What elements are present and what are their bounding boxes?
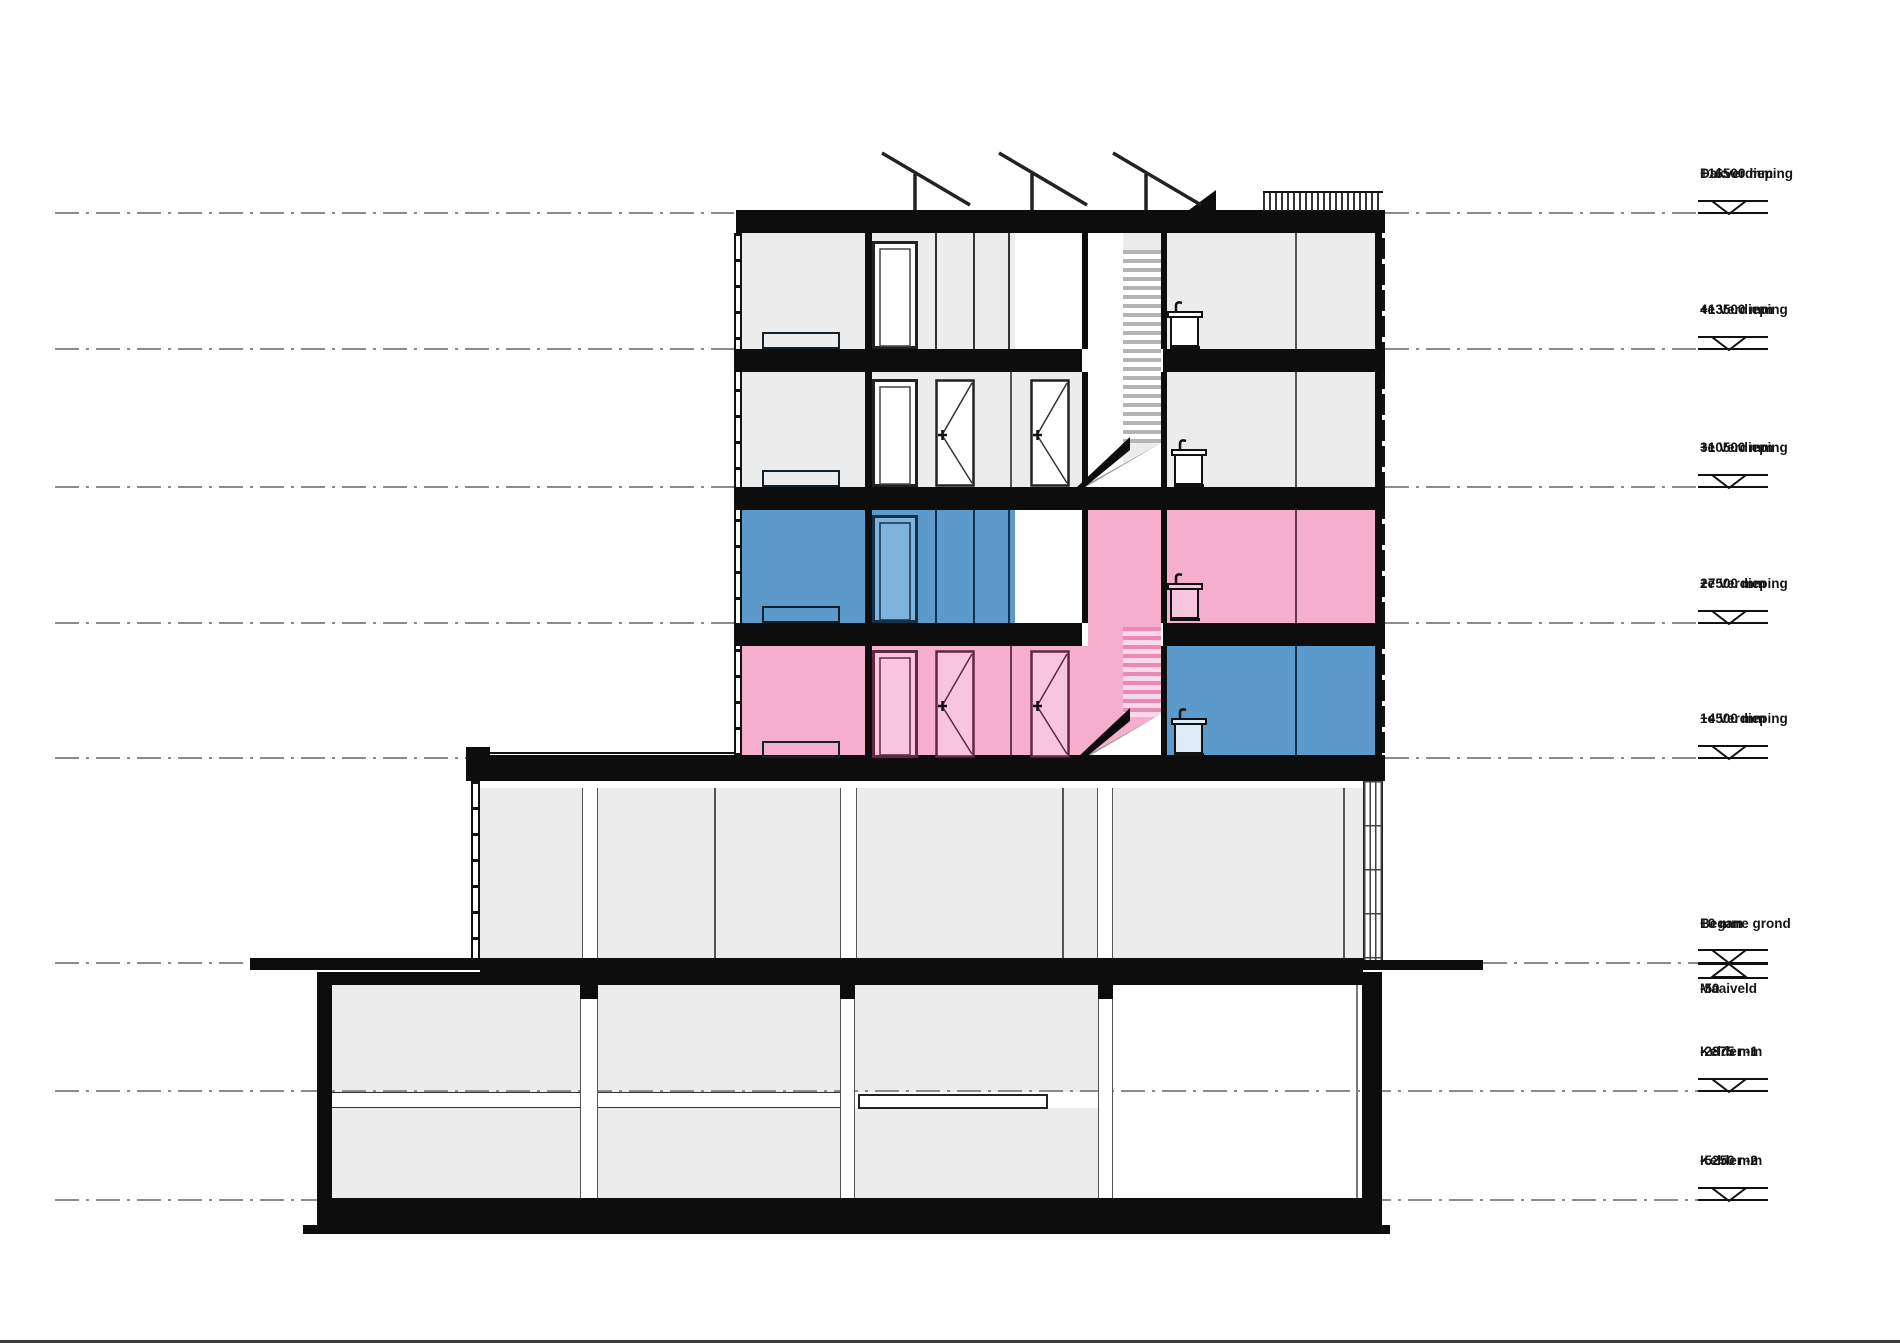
floor3-corridor-wall [1082, 372, 1088, 487]
level-subtext: Maaiveld [1700, 981, 1757, 997]
stair-run-1-2 [1123, 627, 1161, 717]
floor4-room-divider [1295, 233, 1297, 349]
floor2-stair-hall-pink [1088, 510, 1161, 646]
floor4-wall [865, 233, 872, 349]
floor2-wall [865, 510, 872, 623]
basement1-room [332, 985, 1098, 1092]
groundfloor-glass-partition [1343, 788, 1345, 958]
basement-wall [580, 985, 598, 1198]
floor1-hinged-door [1030, 650, 1070, 758]
level-elevation: -2875 mm [1700, 1044, 1762, 1060]
floor3-door [872, 379, 918, 487]
floor4-partition [935, 233, 1010, 349]
podium-roof-slab [470, 755, 1385, 781]
floor3-hinged-door [935, 379, 975, 487]
basement-wall [840, 985, 855, 1198]
foundation-footing [303, 1225, 1390, 1234]
level-line-v3 [1385, 486, 1698, 488]
basement-wall-head [1098, 985, 1113, 999]
groundfloor-room [480, 788, 1363, 958]
floor2-slab-right [1163, 623, 1385, 646]
level-elevation: +7500 mm [1700, 576, 1766, 592]
bench [762, 606, 840, 623]
floor2-room-divider [1295, 510, 1297, 623]
bench [762, 470, 840, 487]
kitchen-sink-icon [1170, 434, 1208, 488]
solar-panel-icon [995, 148, 1095, 212]
level-line-v2 [1385, 622, 1698, 624]
floor1-wall [865, 646, 872, 758]
floor4-corridor-wall [1082, 233, 1088, 349]
floor1-room-divider [1295, 646, 1297, 758]
level-elevation: -5250 mm [1700, 1153, 1762, 1169]
level-marker-baseline-v2 [1698, 622, 1768, 624]
ground-line-right [1363, 960, 1483, 970]
groundfloor-glass-partition [1062, 788, 1064, 958]
floor1-shaft-wall [1161, 646, 1167, 758]
basement1-floor-slab-beam [858, 1094, 1048, 1109]
foundation-slab [317, 1198, 1382, 1225]
floor2-corridor-wall [1082, 510, 1088, 623]
groundfloor-left-facade [471, 781, 480, 958]
groundfloor-glass-partition [714, 788, 716, 958]
solar-panel-icon [1109, 148, 1209, 212]
basement-wall-head [840, 985, 855, 999]
basement-right-wall [1362, 972, 1382, 1225]
section-drawing-canvas: Dakverdieping+16500 mm4e Verdieping+1350… [0, 0, 1900, 1343]
level-line-v4 [55, 348, 734, 350]
ground-line-left [250, 958, 480, 970]
level-marker-baseline-v3 [1698, 486, 1768, 488]
kitchen-sink-icon [1170, 703, 1208, 757]
floor2-partition [935, 510, 1010, 623]
roof-railing-icon [1263, 191, 1383, 211]
level-elevation: +13500 mm [1700, 302, 1773, 318]
groundfloor-slab [480, 958, 1363, 972]
floor2-slab-left [734, 623, 1082, 646]
solar-panel-icon [878, 148, 978, 212]
groundfloor-wall [582, 788, 598, 958]
floor3-room-divider [1295, 372, 1297, 487]
groundfloor-right-facade [1363, 781, 1383, 963]
floor3-shaft-wall [1161, 372, 1167, 487]
level-line-v2 [55, 622, 734, 624]
groundfloor-wall [1097, 788, 1113, 958]
level-marker-baseline-k1 [1698, 1090, 1768, 1092]
level-line-v3 [55, 486, 734, 488]
floor3-wall [865, 372, 872, 487]
level-marker-baseline-bg [1698, 977, 1768, 979]
floor1-partition-line [1010, 646, 1012, 758]
floor4-opening [1015, 233, 1082, 349]
level-marker-triangle-icon [1698, 963, 1768, 978]
level-elevation: +4500 mm [1700, 711, 1766, 727]
podium-roof-edge [490, 752, 736, 754]
roof-slab [736, 210, 1385, 233]
floor3-hinged-door [1030, 379, 1070, 487]
basement-ceiling-slab [317, 972, 1382, 985]
floor4-slab-left [734, 349, 1082, 372]
level-line-bg [55, 962, 250, 964]
floor2-door [872, 515, 918, 623]
kitchen-sink-icon [1166, 296, 1204, 350]
level-marker-midline-bg [1698, 962, 1768, 965]
basement-wall-head [580, 985, 598, 999]
level-elevation: +16500 mm [1700, 166, 1773, 182]
floor4-door [872, 241, 918, 349]
groundfloor-wall [840, 788, 857, 958]
stair-run-3-4 [1123, 250, 1161, 443]
basement-left-wall [317, 972, 332, 1225]
level-line-v1 [1385, 757, 1698, 759]
level-line-dak [1385, 212, 1698, 214]
floor4-stair-hall [1088, 233, 1123, 372]
level-marker-baseline-dak [1698, 212, 1768, 214]
floor3-slab [734, 487, 1385, 510]
floor1-door [872, 650, 918, 758]
floor1-hinged-door [935, 650, 975, 758]
level-marker-baseline-v4 [1698, 348, 1768, 350]
level-line-dak [55, 212, 734, 214]
bench [762, 332, 840, 349]
level-elevation: +0 mm [1700, 916, 1743, 932]
level-line-bg [1483, 962, 1698, 964]
basement-wall [1098, 985, 1113, 1198]
floor2-opening [1015, 510, 1082, 623]
bench [762, 741, 840, 758]
level-line-v4 [1385, 348, 1698, 350]
level-elevation: +10500 mm [1700, 440, 1773, 456]
level-marker-baseline-v1 [1698, 757, 1768, 759]
level-line-v1 [55, 757, 466, 759]
kitchen-sink-icon [1166, 568, 1204, 622]
level-marker-baseline-k2 [1698, 1199, 1768, 1201]
floor4-slab-right [1163, 349, 1385, 372]
floor3-partition-line [1010, 372, 1012, 487]
level-line-k1 [55, 1090, 1698, 1092]
basement2-room [332, 1108, 1098, 1198]
